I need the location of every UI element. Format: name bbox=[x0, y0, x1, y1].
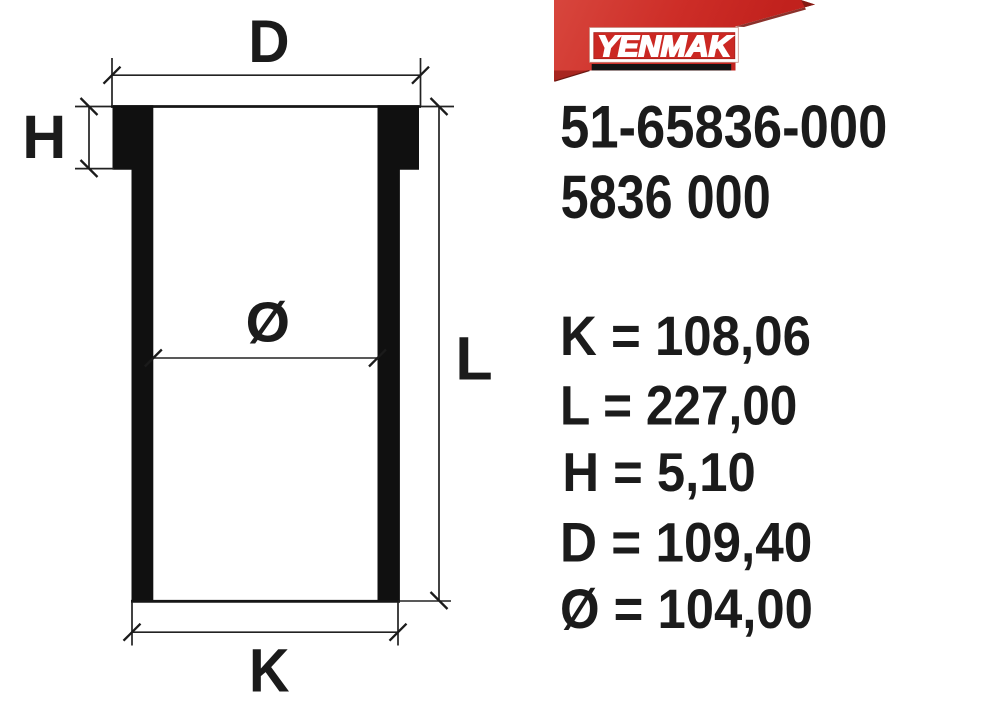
svg-text:K: K bbox=[249, 637, 290, 703]
svg-text:D: D bbox=[248, 9, 289, 76]
svg-text:L: L bbox=[455, 324, 492, 392]
svg-text:Ø = 104,00: Ø = 104,00 bbox=[560, 579, 813, 641]
svg-text:YENMAK: YENMAK bbox=[597, 31, 733, 63]
svg-text:Ø: Ø bbox=[246, 291, 290, 355]
svg-text:H: H bbox=[22, 103, 66, 171]
svg-text:H = 5,10: H = 5,10 bbox=[562, 442, 755, 503]
svg-text:5836 000: 5836 000 bbox=[561, 162, 771, 231]
svg-text:K = 108,06: K = 108,06 bbox=[560, 306, 811, 368]
svg-text:D = 109,40: D = 109,40 bbox=[560, 511, 812, 574]
svg-text:51-65836-000: 51-65836-000 bbox=[560, 94, 887, 161]
svg-text:L = 227,00: L = 227,00 bbox=[560, 375, 797, 437]
